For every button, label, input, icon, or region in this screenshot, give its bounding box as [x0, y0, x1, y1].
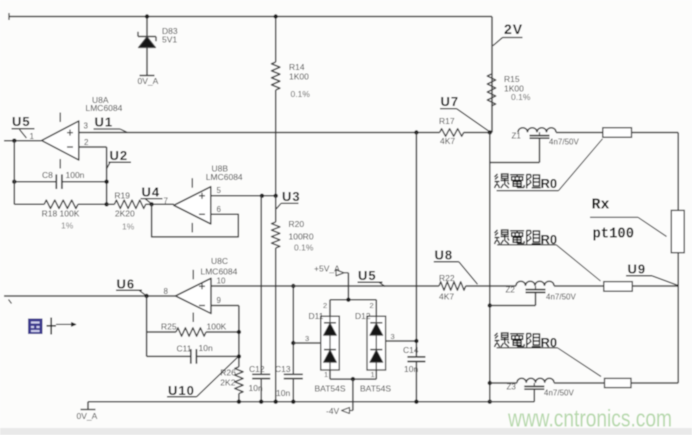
- svg-text:0V_A: 0V_A: [77, 411, 98, 421]
- svg-text:R19: R19: [114, 191, 130, 201]
- svg-text:BAT54S: BAT54S: [360, 384, 391, 394]
- svg-text:3: 3: [84, 122, 89, 131]
- svg-text:2K2: 2K2: [220, 378, 235, 388]
- svg-text:2: 2: [370, 301, 374, 310]
- svg-text:100n: 100n: [66, 170, 85, 180]
- svg-text:2: 2: [323, 301, 327, 310]
- svg-text:1: 1: [371, 370, 375, 379]
- svg-text:3: 3: [391, 332, 395, 341]
- svg-text:4K7: 4K7: [439, 292, 454, 302]
- svg-text:R26: R26: [220, 368, 236, 378]
- svg-text:10n: 10n: [276, 388, 290, 398]
- svg-text:LMC6084: LMC6084: [86, 103, 123, 113]
- svg-text:C12: C12: [249, 364, 265, 374]
- svg-text:U3: U3: [282, 189, 301, 204]
- svg-text:0.1%: 0.1%: [291, 89, 311, 99]
- svg-text:www.cntronics.com: www.cntronics.com: [507, 406, 672, 433]
- svg-text:U7: U7: [441, 94, 460, 109]
- svg-text:10n: 10n: [404, 364, 418, 374]
- svg-text:Z3: Z3: [507, 383, 517, 392]
- svg-text:7: 7: [164, 197, 169, 206]
- svg-text:R0: R0: [541, 176, 558, 191]
- svg-text:-4V: -4V: [326, 406, 340, 416]
- svg-text:0.1%: 0.1%: [511, 92, 531, 102]
- svg-text:R18 100K: R18 100K: [42, 209, 80, 219]
- svg-text:U1: U1: [95, 115, 114, 130]
- svg-text:D12: D12: [355, 311, 371, 321]
- svg-text:LMC6084: LMC6084: [206, 172, 243, 182]
- svg-text:10n: 10n: [249, 383, 263, 393]
- svg-text:4n7/50V: 4n7/50V: [546, 293, 576, 302]
- svg-text:8: 8: [164, 287, 169, 296]
- svg-text:C13: C13: [275, 364, 291, 374]
- svg-text:Rx: Rx: [592, 197, 610, 214]
- svg-text:10: 10: [217, 277, 226, 286]
- svg-text:5V1: 5V1: [162, 35, 177, 45]
- svg-text:2: 2: [84, 138, 89, 147]
- svg-text:1: 1: [30, 132, 35, 141]
- svg-text:U9: U9: [628, 261, 647, 276]
- svg-text:5: 5: [217, 186, 222, 195]
- svg-text:4n7/50V: 4n7/50V: [544, 389, 574, 398]
- svg-text:1%: 1%: [122, 222, 135, 232]
- svg-text:U2: U2: [110, 148, 129, 163]
- svg-text:9: 9: [217, 296, 222, 305]
- svg-text:4n7/50V: 4n7/50V: [549, 138, 579, 147]
- svg-text:BAT54S: BAT54S: [315, 384, 346, 394]
- svg-text:C14: C14: [403, 345, 419, 355]
- svg-text:100R0: 100R0: [289, 232, 314, 242]
- svg-text:2K20: 2K20: [115, 209, 135, 219]
- svg-text:U8: U8: [435, 248, 454, 263]
- svg-text:U4: U4: [142, 185, 161, 200]
- svg-text:Z1: Z1: [512, 132, 522, 141]
- svg-text:R17: R17: [439, 116, 455, 126]
- svg-text:U6: U6: [117, 277, 136, 292]
- svg-text:Z2: Z2: [506, 286, 516, 295]
- svg-text:R20: R20: [289, 219, 305, 229]
- svg-text:0V_A: 0V_A: [138, 76, 159, 86]
- svg-text:C8: C8: [42, 170, 53, 180]
- svg-text:R22: R22: [439, 273, 455, 283]
- svg-text:10n: 10n: [199, 343, 213, 353]
- svg-text:1: 1: [324, 370, 328, 379]
- svg-text:LMC6084: LMC6084: [201, 267, 238, 277]
- svg-text:R14: R14: [289, 62, 305, 72]
- svg-text:R15: R15: [504, 74, 520, 84]
- svg-text:2V: 2V: [504, 21, 523, 37]
- svg-text:R25: R25: [161, 322, 177, 332]
- svg-text:pt100: pt100: [593, 226, 635, 243]
- svg-text:U5: U5: [358, 268, 377, 283]
- svg-text:6: 6: [217, 205, 222, 214]
- svg-text:3: 3: [305, 334, 309, 343]
- svg-text:4K7: 4K7: [440, 136, 455, 146]
- svg-text:1K00: 1K00: [289, 72, 309, 82]
- svg-text:100K: 100K: [207, 322, 227, 332]
- svg-text:1%: 1%: [61, 221, 74, 231]
- svg-text:U5: U5: [12, 114, 31, 129]
- svg-text:D11: D11: [309, 311, 324, 321]
- svg-text:U8C: U8C: [211, 256, 228, 266]
- svg-text:C11: C11: [177, 344, 192, 354]
- svg-text:0.1%: 0.1%: [294, 243, 314, 253]
- svg-text:U10: U10: [168, 383, 195, 398]
